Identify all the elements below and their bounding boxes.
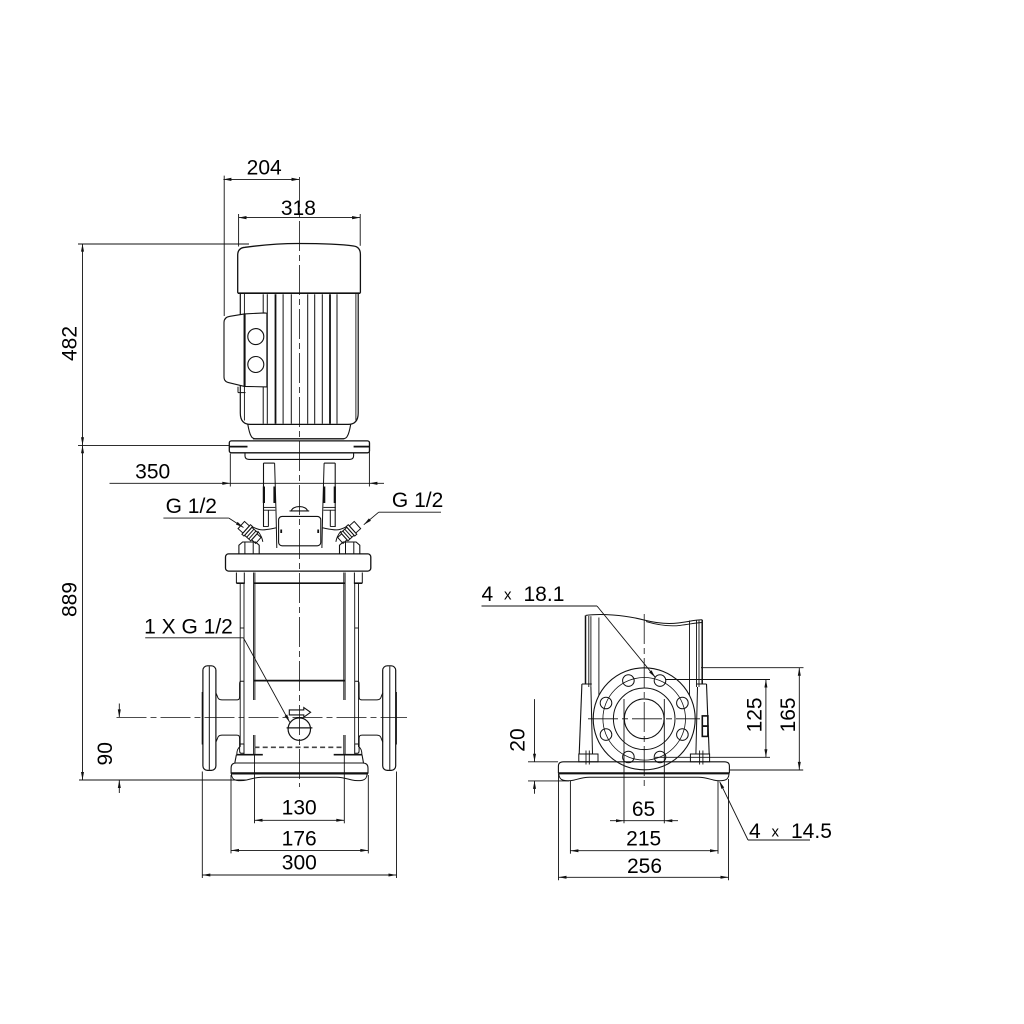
svg-text:350: 350 bbox=[135, 461, 170, 484]
svg-text:65: 65 bbox=[632, 798, 655, 821]
svg-text:318: 318 bbox=[281, 197, 316, 220]
svg-text:204: 204 bbox=[247, 156, 282, 179]
svg-text:G 1/2: G 1/2 bbox=[166, 495, 217, 518]
svg-text:889: 889 bbox=[59, 582, 82, 617]
svg-text:215: 215 bbox=[626, 828, 661, 851]
svg-text:300: 300 bbox=[282, 851, 317, 874]
svg-text:x: x bbox=[772, 823, 780, 840]
svg-text:482: 482 bbox=[59, 326, 82, 361]
svg-text:165: 165 bbox=[777, 697, 800, 732]
svg-text:90: 90 bbox=[94, 742, 117, 765]
svg-text:1 X G 1/2: 1 X G 1/2 bbox=[144, 616, 233, 639]
svg-text:125: 125 bbox=[744, 697, 767, 732]
svg-text:130: 130 bbox=[282, 797, 317, 820]
svg-text:18.1: 18.1 bbox=[524, 583, 565, 606]
svg-text:176: 176 bbox=[282, 827, 317, 850]
svg-text:x: x bbox=[504, 587, 512, 604]
svg-text:20: 20 bbox=[507, 728, 530, 751]
svg-text:4: 4 bbox=[482, 583, 494, 606]
svg-text:256: 256 bbox=[627, 855, 662, 878]
svg-text:G 1/2: G 1/2 bbox=[392, 489, 443, 512]
